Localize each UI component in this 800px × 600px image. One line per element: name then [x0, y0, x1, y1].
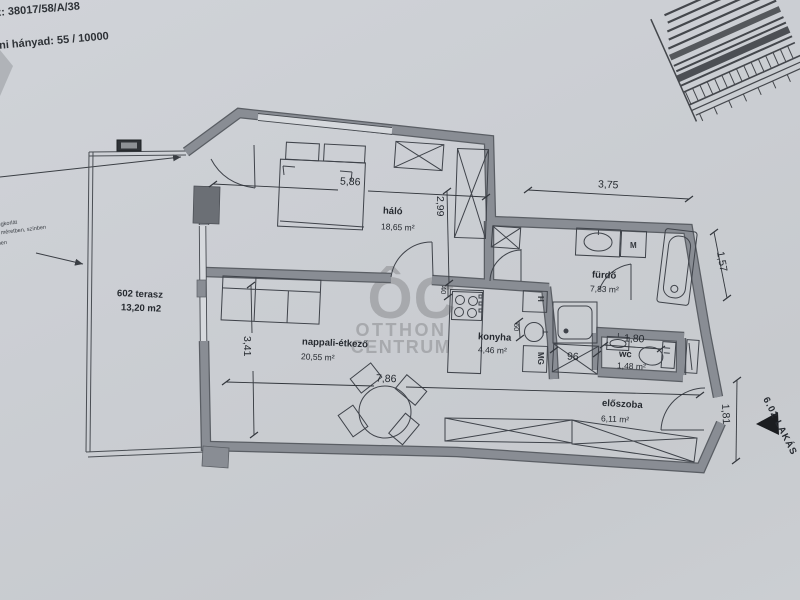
room-wc-name: wc: [618, 349, 632, 361]
nightstand-right: [324, 144, 366, 163]
room-nappali-area: 20,55 m²: [301, 351, 335, 362]
dim-bedroom-width: 5,86: [340, 175, 361, 188]
floorplan-photo: z: 38017/58/A/38 doni hányad: 55 / 10000…: [0, 0, 800, 600]
kitchen-sink: [525, 323, 544, 342]
note-line-3: ben: [0, 240, 7, 247]
washer-label: M: [630, 241, 637, 250]
building-facade-thumbnail: [651, 0, 800, 123]
entrance-marker: 6.02 LAKÁS: [756, 395, 799, 457]
room-furdo-area: 7,83 m²: [590, 283, 619, 294]
terrace-pillar-core: [121, 143, 137, 149]
shower: [553, 302, 597, 343]
floorplan-drawing: z: 38017/58/A/38 doni hányad: 55 / 10000…: [0, 0, 800, 600]
wall-corner-step: [202, 446, 229, 468]
bath-lobby-door: [490, 249, 521, 281]
room-halo-name: háló: [383, 206, 403, 218]
nightstand-left: [286, 142, 320, 161]
dim-right-upper: 1,57: [714, 250, 729, 272]
bath-vanity: [575, 228, 620, 257]
room-eloszoba-name: előszoba: [602, 398, 644, 411]
room-halo-area: 18,65 m²: [381, 221, 415, 232]
dining-table: [359, 386, 411, 438]
room-konyha-name: konyha: [478, 331, 512, 343]
room-wc-area: 1,48 m²: [617, 360, 646, 372]
room-furdo-name: fürdő: [592, 270, 617, 282]
dim-bedroom-depth: 2,99: [434, 196, 446, 217]
dim-wall-stub: 40: [439, 286, 448, 294]
room-eloszoba-area: 6,11 m²: [601, 413, 630, 424]
ownership-share: doni hányad: 55 / 10000: [0, 30, 109, 53]
bath-lobby-cabinet: [491, 226, 520, 249]
bed-blanket-line: [280, 221, 364, 227]
paper-edge-shadow: [0, 50, 13, 96]
wardrobe-tall: [454, 149, 488, 239]
dim-entry-height: 1,81: [719, 404, 732, 425]
sofa: [221, 276, 321, 324]
wall-leader-arrow: [0, 157, 181, 177]
note-block: biztonsági üvegkorlát típus szerint mére…: [0, 157, 181, 264]
hall-closet-left: [445, 418, 572, 443]
room-terasz-area: 13,20 m2: [121, 302, 162, 314]
double-bed: [278, 159, 366, 230]
dim-closet-width: 96: [567, 351, 579, 364]
parcel-number: z: 38017/58/A/38: [0, 0, 80, 19]
room-terasz-name: 602 terasz: [117, 288, 164, 301]
dim-sink-run: 60: [512, 323, 521, 331]
dim-living-width: 7,86: [376, 373, 397, 386]
wardrobe-top: [394, 141, 444, 170]
room-konyha-area: 4,46 m²: [478, 344, 507, 355]
radiator-line: [689, 343, 692, 370]
header-block: z: 38017/58/A/38 doni hányad: 55 / 10000: [0, 0, 109, 53]
chair: [338, 405, 368, 437]
dishwasher-label: MG: [536, 352, 545, 365]
chair: [389, 413, 420, 444]
dim-wc-width: 1,80: [624, 332, 645, 345]
chair: [395, 375, 426, 406]
note-leader-arrow: [36, 253, 83, 264]
terrace-door: [211, 145, 255, 188]
wall-pier: [193, 186, 220, 224]
dim-living-depth: 3,41: [241, 336, 253, 357]
dim-bath-width: 3,75: [598, 178, 619, 191]
fridge-label: H: [536, 296, 545, 302]
room-nappali-name: nappali-étkező: [302, 336, 369, 350]
window-mullion-pier: [197, 280, 206, 297]
